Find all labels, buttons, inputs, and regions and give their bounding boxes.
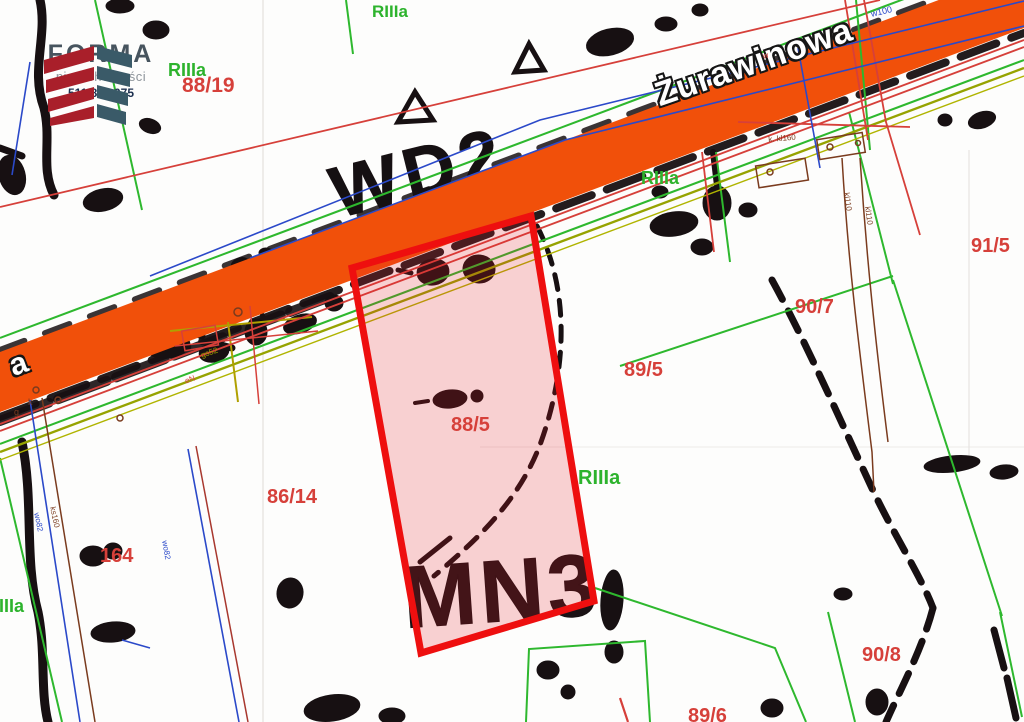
utility-line-label: k — [28, 398, 33, 407]
utility-line-label: wo82 — [32, 512, 44, 532]
utility-line-label: w100 — [870, 5, 893, 19]
utility-line-label: eN — [184, 374, 196, 385]
utility-line-label: w — [762, 52, 770, 61]
utility-line-label: wo82 — [160, 540, 171, 560]
utility-line-label: gs52 — [200, 347, 219, 360]
utility-line-label: g — [14, 408, 19, 417]
utility-line-label: kl110 — [863, 206, 874, 225]
utility-line-label: k. kl160 — [768, 134, 796, 144]
cadastral-map[interactable]: WD2 MN3 — [0, 0, 1024, 722]
logo-building-icon — [36, 38, 140, 126]
utility-line-label: kl110 — [842, 192, 853, 211]
agency-logo: FORMA nieruchomości 511 893 075 — [36, 38, 166, 100]
utility-labels-layer: w100wo82ks160wo82gs52eNk. kl160kl110kl11… — [0, 0, 1024, 722]
utility-line-label: ks160 — [48, 506, 60, 529]
